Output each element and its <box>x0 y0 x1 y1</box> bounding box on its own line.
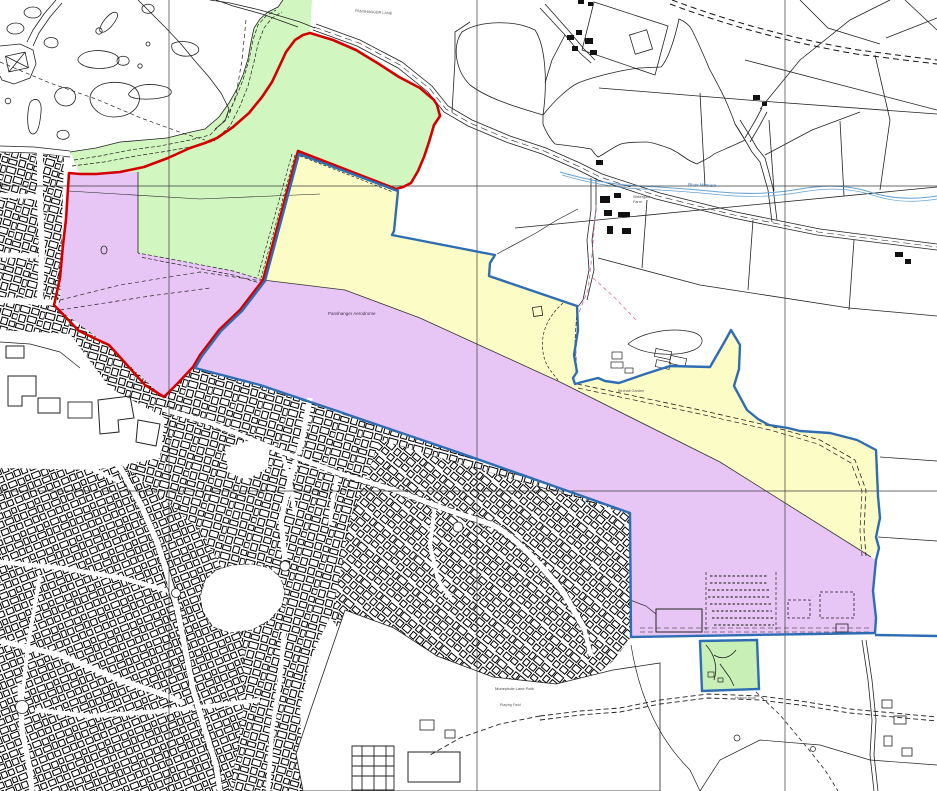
svg-text:Playing Field: Playing Field <box>500 703 521 707</box>
svg-text:River Mimram: River Mimram <box>688 182 716 188</box>
svg-text:Panshanger Aerodrome: Panshanger Aerodrome <box>328 311 376 316</box>
svg-text:Watergate: Watergate <box>633 195 650 199</box>
svg-text:Holwell Hyde: Holwell Hyde <box>735 696 756 700</box>
svg-text:Birchall Garden: Birchall Garden <box>618 389 644 393</box>
svg-text:Farm: Farm <box>633 200 642 204</box>
svg-text:Moneyhole Lane Park: Moneyhole Lane Park <box>495 686 534 691</box>
